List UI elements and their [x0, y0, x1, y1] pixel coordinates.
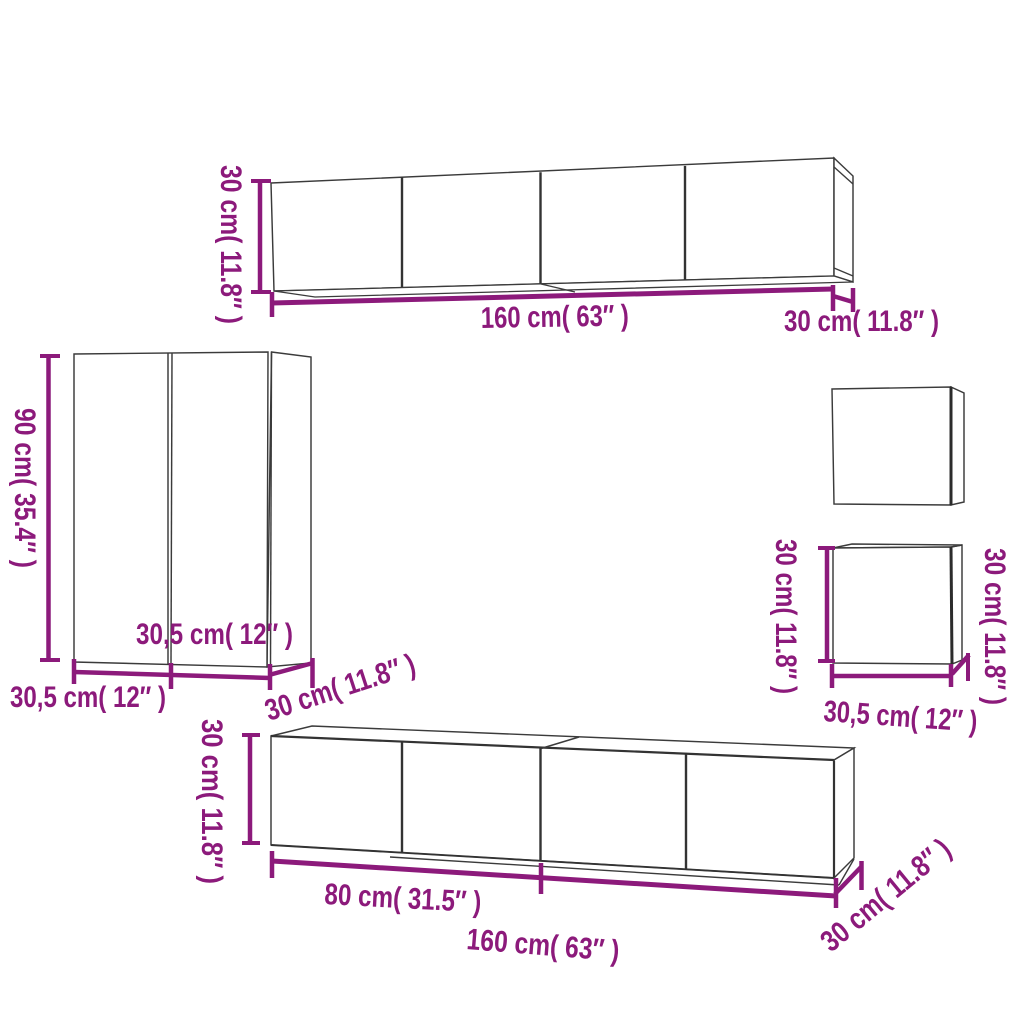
svg-text:30 cm( 11.8″ ): 30 cm( 11.8″ )	[195, 719, 228, 884]
svg-text:30,5 cm( 12″ ): 30,5 cm( 12″ )	[10, 681, 166, 714]
svg-text:30,5 cm( 12″ ): 30,5 cm( 12″ )	[136, 618, 293, 651]
svg-text:90 cm( 35.4″ ): 90 cm( 35.4″ )	[8, 408, 41, 568]
svg-text:30 cm( 11.8″ ): 30 cm( 11.8″ )	[214, 165, 247, 324]
svg-text:30 cm( 11.8″ ): 30 cm( 11.8″ )	[978, 548, 1011, 705]
svg-text:30 cm( 11.8″ ): 30 cm( 11.8″ )	[784, 305, 939, 338]
svg-text:160 cm( 63″ ): 160 cm( 63″ )	[481, 299, 630, 335]
svg-text:30 cm( 11.8″ ): 30 cm( 11.8″ )	[769, 539, 802, 694]
